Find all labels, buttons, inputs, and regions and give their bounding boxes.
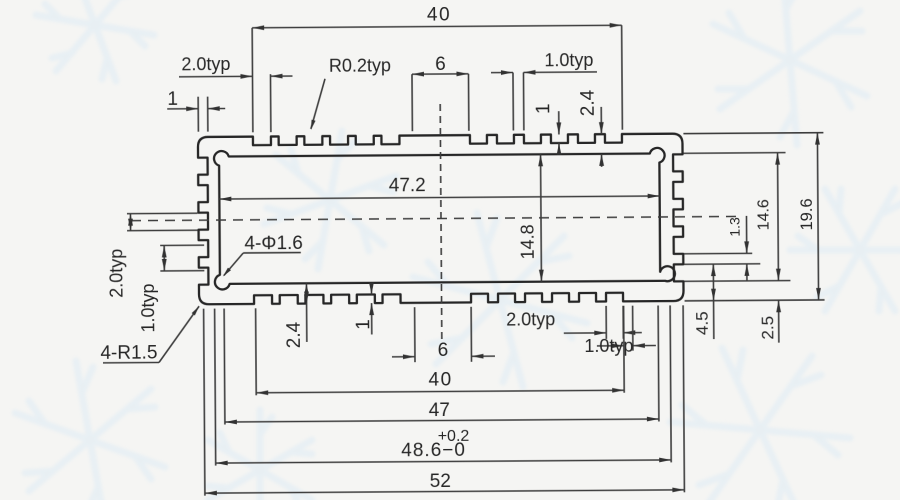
svg-text:6: 6 [435,54,446,75]
svg-text:2.4: 2.4 [284,321,305,348]
svg-text:14.8: 14.8 [518,224,538,259]
svg-text:14.6: 14.6 [755,199,772,230]
svg-text:4.5: 4.5 [693,311,712,335]
svg-text:1.0typ: 1.0typ [544,50,593,70]
svg-text:19.6: 19.6 [798,198,816,230]
svg-text:1.0typ: 1.0typ [138,283,158,332]
svg-text:R0.2typ: R0.2typ [329,55,391,75]
svg-text:4-R1.5: 4-R1.5 [100,342,157,363]
svg-text:2.4: 2.4 [578,89,599,116]
svg-text:6: 6 [438,340,449,361]
svg-text:1: 1 [353,319,374,330]
svg-text:2.0typ: 2.0typ [506,309,555,329]
svg-text:1: 1 [533,103,554,114]
svg-text:2.5: 2.5 [758,316,777,340]
svg-text:40: 40 [427,4,451,25]
svg-text:4-Φ1.6: 4-Φ1.6 [244,233,303,254]
svg-text:1.3: 1.3 [726,217,742,237]
svg-text:2.0typ: 2.0typ [181,54,230,74]
svg-text:48.6−0: 48.6−0 [401,440,466,461]
svg-text:47: 47 [429,400,450,421]
svg-text:1: 1 [167,89,178,110]
svg-text:1.0typ: 1.0typ [584,336,633,356]
svg-text:52: 52 [430,471,451,492]
svg-text:40: 40 [428,369,452,390]
svg-text:47.2: 47.2 [389,175,426,196]
svg-text:2.0typ: 2.0typ [106,249,126,298]
